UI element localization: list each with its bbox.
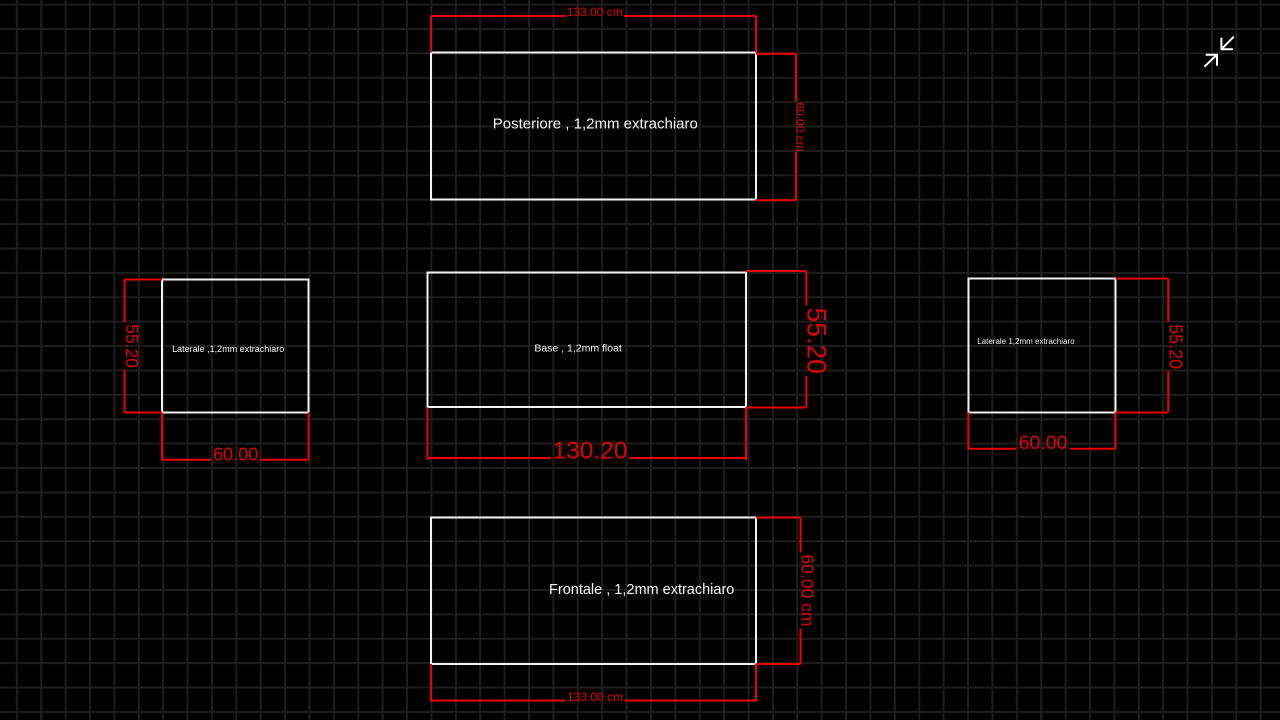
svg-text:55.20: 55.20 xyxy=(122,324,142,368)
svg-text:130.20: 130.20 xyxy=(553,438,628,465)
svg-text:60.00 cm: 60.00 cm xyxy=(793,102,807,151)
svg-text:Posteriore , 1,2mm extrachiaro: Posteriore , 1,2mm extrachiaro xyxy=(493,116,698,133)
svg-text:Base , 1,2mm float: Base , 1,2mm float xyxy=(534,342,622,354)
svg-text:60.00 cm: 60.00 cm xyxy=(798,555,818,627)
svg-text:Laterale 1,2mm extrachiaro: Laterale 1,2mm extrachiaro xyxy=(977,337,1075,346)
svg-text:60.00: 60.00 xyxy=(213,445,258,465)
svg-text:60.00: 60.00 xyxy=(1019,432,1068,454)
svg-text:133.00 cm: 133.00 cm xyxy=(567,5,623,19)
svg-text:55.20: 55.20 xyxy=(1165,324,1185,369)
svg-text:Frontale , 1,2mm extrachiaro: Frontale , 1,2mm extrachiaro xyxy=(549,582,734,598)
svg-text:55.20: 55.20 xyxy=(801,308,831,374)
svg-text:Laterale ,1,2mm extrachiaro: Laterale ,1,2mm extrachiaro xyxy=(172,344,284,354)
svg-text:133.00 cm: 133.00 cm xyxy=(567,690,623,704)
